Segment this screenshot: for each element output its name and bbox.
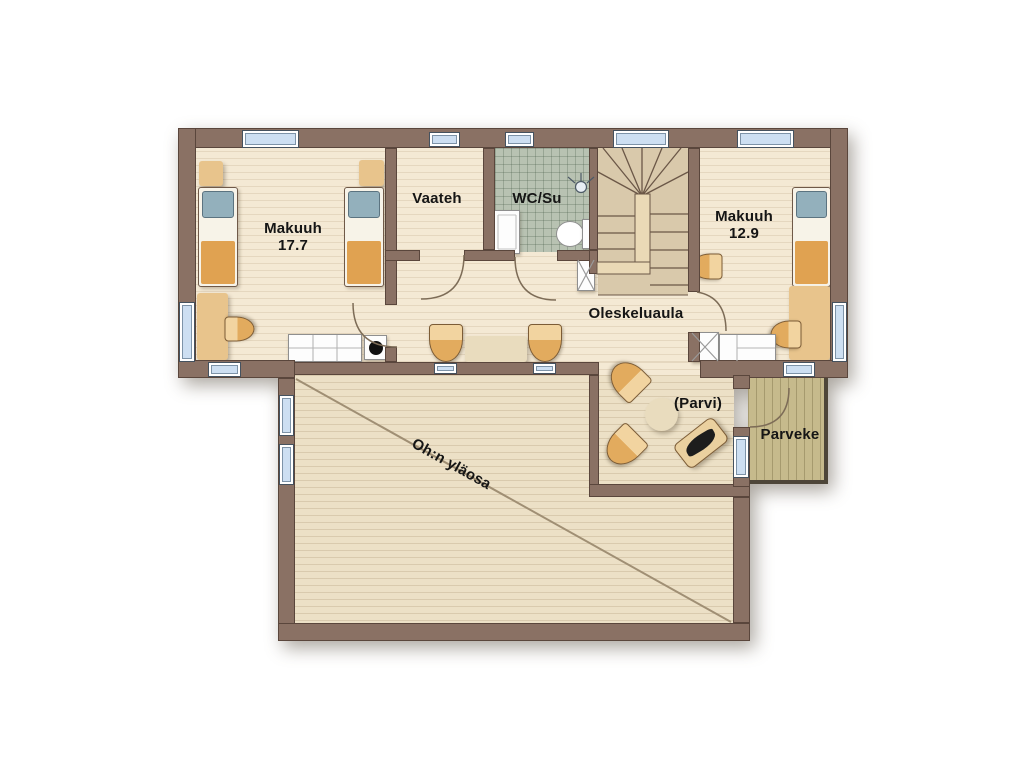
room-name: (Parvi) [657, 395, 739, 412]
bed-pillow [348, 191, 380, 218]
wall-bedroom2-bottom [700, 360, 848, 378]
window-pane [245, 133, 296, 145]
cabinet [288, 334, 362, 362]
bed [198, 187, 238, 287]
bed-blanket [201, 241, 235, 284]
room-area: 12.9 [698, 225, 790, 242]
desk [197, 293, 228, 360]
window [737, 130, 794, 148]
bed-pillow [796, 191, 827, 218]
wall-stairs-left-lower [589, 250, 598, 274]
window [429, 132, 460, 147]
staircase-floor [598, 148, 688, 295]
screenshot-canvas: Makuuh 17.7 Vaateh WC/Su Makuuh 12.9 Ole… [0, 0, 1024, 768]
window-pane [432, 135, 457, 144]
window [783, 362, 815, 377]
bed [344, 187, 384, 287]
window [613, 130, 669, 148]
wall-closet-wc [483, 148, 495, 250]
window-pane [835, 305, 844, 359]
room-name: Vaateh [399, 190, 475, 207]
wall-closet-bottom-left [385, 250, 420, 261]
window [733, 436, 749, 478]
wall-bedroom1-right-upper [385, 148, 397, 305]
room-name: WC/Su [499, 190, 575, 207]
sink-vanity [494, 210, 520, 254]
window-pane [182, 305, 192, 359]
wall-void-bottom [278, 623, 750, 641]
room-name: Oleskeluaula [584, 305, 688, 322]
wall-bedroom2-left-lower [688, 332, 700, 362]
bed-pillow [202, 191, 234, 218]
window [242, 130, 299, 148]
window-pane [736, 439, 746, 475]
label-bedroom2: Makuuh 12.9 [698, 208, 790, 242]
window [208, 362, 241, 377]
railing-loft-bottom [589, 484, 750, 497]
window-pane [616, 133, 666, 145]
window [179, 302, 195, 362]
railing-glass-panel [434, 363, 457, 374]
window [279, 444, 294, 485]
stove-burner [369, 341, 383, 355]
bed-blanket [795, 241, 828, 284]
floor-plan: Makuuh 17.7 Vaateh WC/Su Makuuh 12.9 Ole… [0, 0, 1024, 768]
window [505, 132, 534, 147]
label-wc: WC/Su [499, 190, 575, 207]
railing-loft-left [589, 375, 599, 487]
label-lounge: Oleskeluaula [584, 305, 688, 322]
stove-unit [364, 335, 387, 360]
window [279, 395, 294, 436]
window-pane [437, 366, 454, 371]
nightstand [359, 160, 384, 186]
wall-closet-bottom-right [464, 250, 515, 261]
wall-loft-balcony-upper [733, 375, 750, 389]
window-pane [211, 365, 238, 374]
dresser [719, 334, 776, 362]
window-pane [786, 365, 812, 374]
window-pane [508, 135, 531, 144]
wall-bedroom1-right-lower [385, 347, 397, 362]
nightstand [199, 161, 223, 186]
label-closet: Vaateh [399, 190, 475, 207]
label-loft: (Parvi) [657, 395, 739, 412]
railing-glass-panel [533, 363, 556, 374]
label-bedroom1: Makuuh 17.7 [240, 220, 346, 254]
wall-wc-stairs [589, 148, 598, 250]
window-pane [282, 398, 291, 433]
toilet-bowl [556, 221, 584, 247]
bed [792, 187, 831, 287]
bed-blanket [347, 241, 381, 284]
window-pane [282, 447, 291, 482]
room-name: Parveke [751, 426, 829, 443]
coffee-table [465, 336, 527, 362]
room-area: 17.7 [240, 237, 346, 254]
label-balcony: Parveke [751, 426, 829, 443]
window-pane [536, 366, 553, 371]
wall-void-right [733, 497, 750, 623]
room-name: Makuuh [698, 208, 790, 225]
window [832, 302, 847, 362]
window-pane [740, 133, 791, 145]
room-name: Makuuh [240, 220, 346, 237]
